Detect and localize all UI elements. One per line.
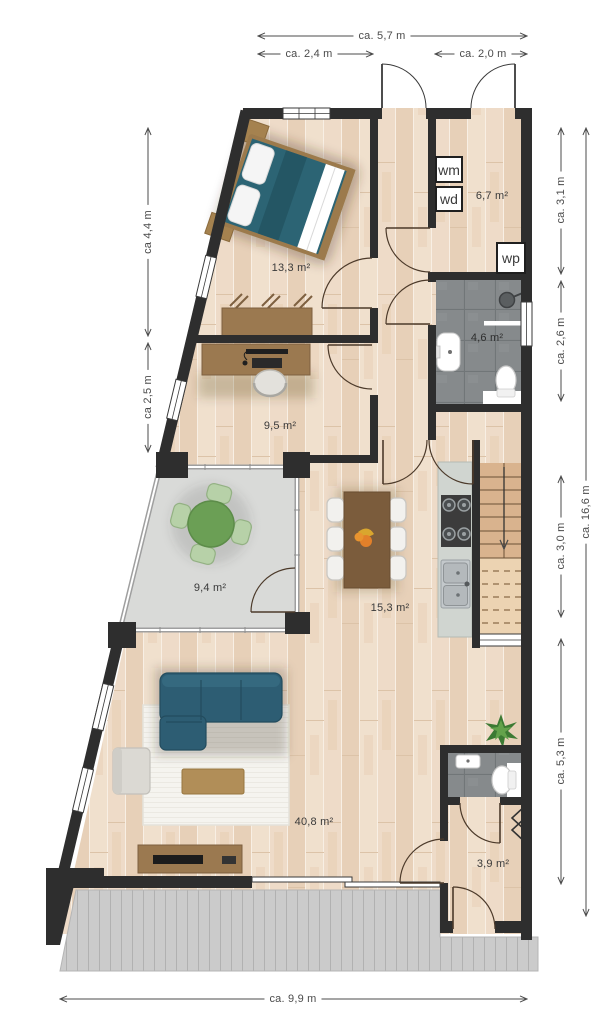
room-label-conservatory: 9,4 m² (194, 582, 226, 594)
plan-svg (0, 0, 609, 1024)
room-label-hall: 3,9 m² (477, 858, 509, 870)
room-label-bathroom: 4,6 m² (471, 332, 503, 344)
dim-top-right: ca. 2,0 m (454, 48, 511, 60)
room-label-office: 9,5 m² (264, 420, 296, 432)
monitor (246, 349, 288, 354)
dim-left-upper: ca 4,4 m (142, 205, 154, 259)
bathroom-sink (436, 333, 460, 371)
room-label-bedroom: 13,3 m² (272, 262, 311, 274)
dim-right-1: ca. 3,1 m (555, 171, 567, 228)
floor-plan: ca. 5,7 m ca. 2,4 m ca. 2,0 m ca 4,4 m c… (0, 0, 609, 1024)
dim-right-4: ca. 5,3 m (555, 732, 567, 789)
dim-top-total: ca. 5,7 m (353, 30, 410, 42)
sofa (155, 668, 287, 756)
wardrobe (222, 294, 312, 337)
stove (441, 495, 471, 547)
heat-pump-box: wp (496, 242, 526, 274)
entry-door (471, 64, 515, 108)
desk (198, 344, 314, 398)
dim-right-total: ca. 16,6 m (580, 480, 592, 543)
dim-right-3: ca. 3,0 m (555, 517, 567, 574)
kitchen-sink (441, 560, 470, 608)
dim-left-lower: ca 2,5 m (142, 370, 154, 424)
room-label-living: 40,8 m² (295, 816, 334, 828)
armchair (113, 748, 150, 794)
dim-bottom-total: ca. 9,9 m (264, 993, 321, 1005)
mouse (243, 361, 248, 366)
dryer-box: wd (435, 186, 463, 212)
dining-table-set (327, 488, 406, 592)
wc-toilet (492, 763, 521, 797)
kitchen-counter (438, 462, 472, 637)
tv (153, 855, 203, 864)
tv-unit (138, 845, 242, 873)
dim-top-left: ca. 2,4 m (280, 48, 337, 60)
room-label-kitchen: 15,3 m² (371, 602, 410, 614)
window (521, 302, 532, 346)
window (283, 108, 330, 119)
entry-door (382, 64, 426, 108)
keyboard (252, 358, 282, 368)
washing-machine-box: wm (435, 156, 463, 183)
room-label-utility: 6,7 m² (476, 190, 508, 202)
office-chair (254, 370, 286, 396)
dim-right-2: ca. 2,6 m (555, 312, 567, 369)
wc-sink (456, 755, 480, 768)
coffee-table (182, 769, 244, 794)
